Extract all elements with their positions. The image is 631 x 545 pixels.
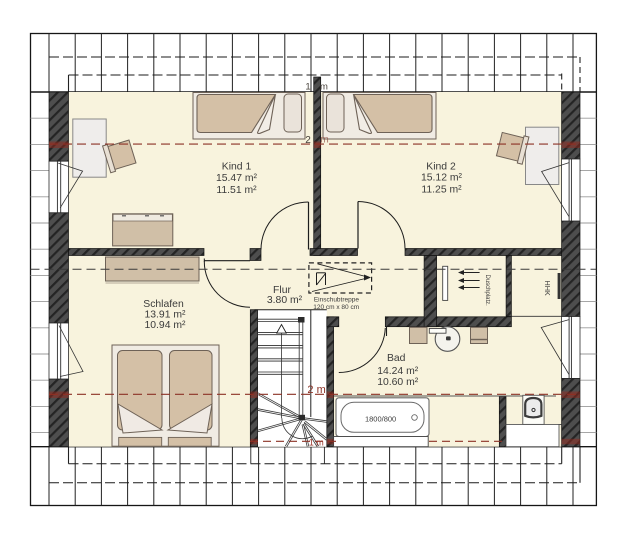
- svg-text:Bad: Bad: [387, 353, 406, 364]
- svg-text:2 m: 2 m: [307, 384, 325, 396]
- svg-text:m: m: [320, 135, 328, 146]
- svg-text:Duschplatz.: Duschplatz.: [484, 275, 490, 307]
- svg-text:Kind 2: Kind 2: [426, 162, 456, 173]
- svg-text:HHK: HHK: [543, 281, 552, 296]
- svg-text:120 cm x 80 cm: 120 cm x 80 cm: [313, 304, 359, 311]
- svg-text:1: 1: [305, 81, 310, 92]
- svg-text:Kind 1: Kind 1: [222, 162, 252, 173]
- svg-text:15.47 m²: 15.47 m²: [216, 173, 258, 184]
- svg-text:13.91 m²: 13.91 m²: [144, 310, 186, 321]
- svg-text:14.24 m²: 14.24 m²: [377, 366, 419, 377]
- svg-text:m: m: [320, 81, 328, 92]
- svg-text:15.12 m²: 15.12 m²: [421, 173, 463, 184]
- svg-text:10.94 m²: 10.94 m²: [144, 320, 186, 331]
- svg-text:11.25 m²: 11.25 m²: [421, 185, 462, 196]
- svg-text:Einschubtreppe: Einschubtreppe: [314, 297, 360, 304]
- svg-text:2: 2: [305, 135, 311, 146]
- svg-text:10.60 m²: 10.60 m²: [377, 377, 419, 388]
- svg-text:1 m: 1 m: [309, 438, 324, 448]
- svg-text:1800/800: 1800/800: [365, 415, 396, 424]
- svg-text:3.80 m²: 3.80 m²: [267, 295, 303, 306]
- svg-text:11.51 m²: 11.51 m²: [216, 185, 257, 196]
- svg-text:Schlafen: Schlafen: [143, 299, 184, 310]
